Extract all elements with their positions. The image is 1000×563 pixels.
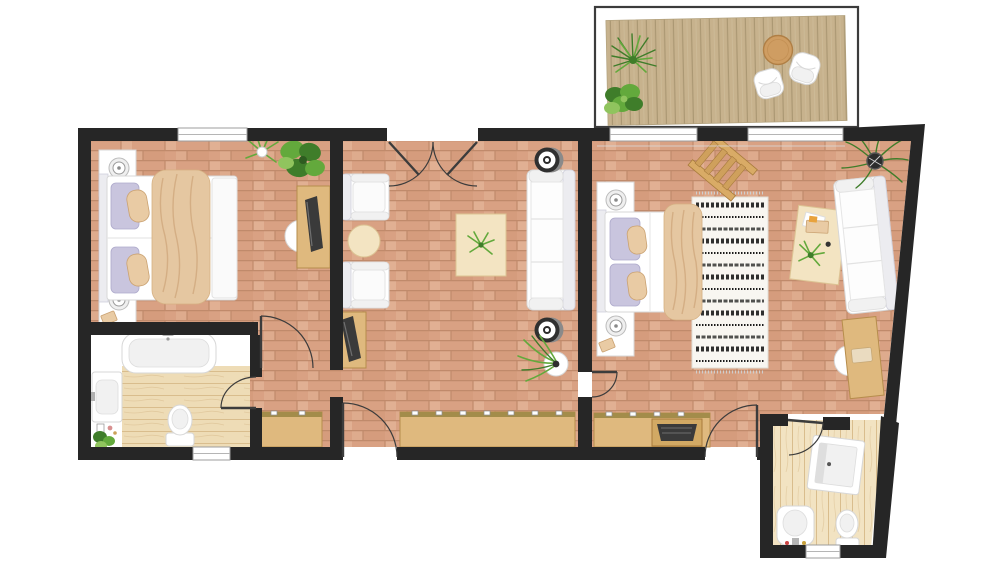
armchair	[341, 174, 389, 220]
round-side-table	[348, 225, 380, 257]
wall-segment	[823, 417, 850, 430]
wall-segment	[760, 414, 788, 426]
wall-segment	[592, 128, 610, 141]
wall-segment	[578, 141, 592, 372]
wall-segment	[592, 447, 705, 460]
wall-segment	[760, 414, 773, 558]
terrace-plant	[604, 84, 643, 114]
wall-segment	[78, 128, 91, 460]
window	[193, 447, 230, 460]
washbasin	[777, 506, 814, 545]
wardrobe	[400, 411, 575, 447]
coffee-table	[456, 214, 506, 276]
hallway-wardrobe	[258, 411, 322, 447]
wall-segment	[78, 128, 178, 141]
nightstand	[597, 308, 634, 356]
double-bed	[99, 170, 237, 304]
toilet	[836, 510, 859, 548]
luggage-rack	[652, 419, 702, 446]
wall-segment	[578, 397, 592, 460]
window	[748, 128, 843, 141]
wall-segment	[333, 128, 387, 141]
ceiling-spotlight	[535, 148, 564, 173]
wall-segment	[330, 141, 343, 370]
wall-segment	[697, 128, 748, 141]
toilet	[166, 405, 194, 446]
wall-segment	[397, 447, 592, 460]
wall-segment	[247, 128, 333, 141]
washbasin	[90, 372, 122, 422]
window	[178, 128, 247, 141]
armchair	[341, 262, 389, 308]
floor-plan	[0, 0, 1000, 563]
patterned-rug	[692, 193, 768, 372]
terrace	[595, 7, 858, 127]
wall-segment	[760, 545, 806, 558]
double-bed	[597, 204, 702, 320]
wall-segment	[78, 447, 193, 460]
window	[806, 545, 840, 558]
sofa	[527, 170, 575, 310]
bathtub	[122, 330, 216, 373]
wall-segment	[78, 322, 258, 335]
wall-segment	[478, 128, 592, 141]
wall-segment	[250, 408, 262, 447]
terrace-round-table	[764, 36, 793, 65]
terrace-doors	[610, 128, 697, 141]
ceiling-spotlight	[535, 318, 564, 343]
shower	[807, 435, 865, 495]
wall-segment	[230, 447, 343, 460]
